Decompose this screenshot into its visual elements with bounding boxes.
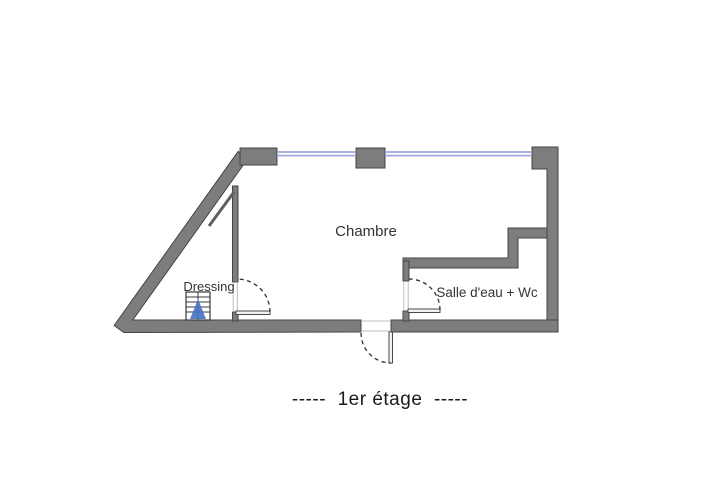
dressing-door-leaf (236, 311, 270, 315)
wall-bottom-right (391, 320, 558, 332)
room-label-dressing: Dressing (177, 279, 241, 294)
wall-bathroom-partition (403, 261, 409, 281)
wall-top-right-and-right (532, 147, 558, 332)
stairs-icon (186, 292, 210, 320)
floor-plan-canvas (0, 0, 728, 495)
floor-caption: ----- 1er étage ----- (250, 389, 510, 411)
wall-dressing-partition (233, 186, 239, 282)
bathroom-door-leaf (408, 309, 440, 313)
dressing-door-arc (237, 279, 270, 312)
room-label-chambre: Chambre (316, 223, 416, 240)
wall-bathroom-step (403, 228, 547, 268)
floor-plan-page: Chambre Dressing Salle d'eau + Wc ----- … (0, 0, 728, 495)
wall-top-center-stub (356, 148, 385, 168)
wall-top-left (240, 148, 277, 165)
room-label-salle-deau-wc: Salle d'eau + Wc (427, 285, 547, 300)
entrance-door-arc (361, 333, 391, 363)
entrance-door-leaf (389, 332, 393, 363)
windows (277, 152, 532, 156)
